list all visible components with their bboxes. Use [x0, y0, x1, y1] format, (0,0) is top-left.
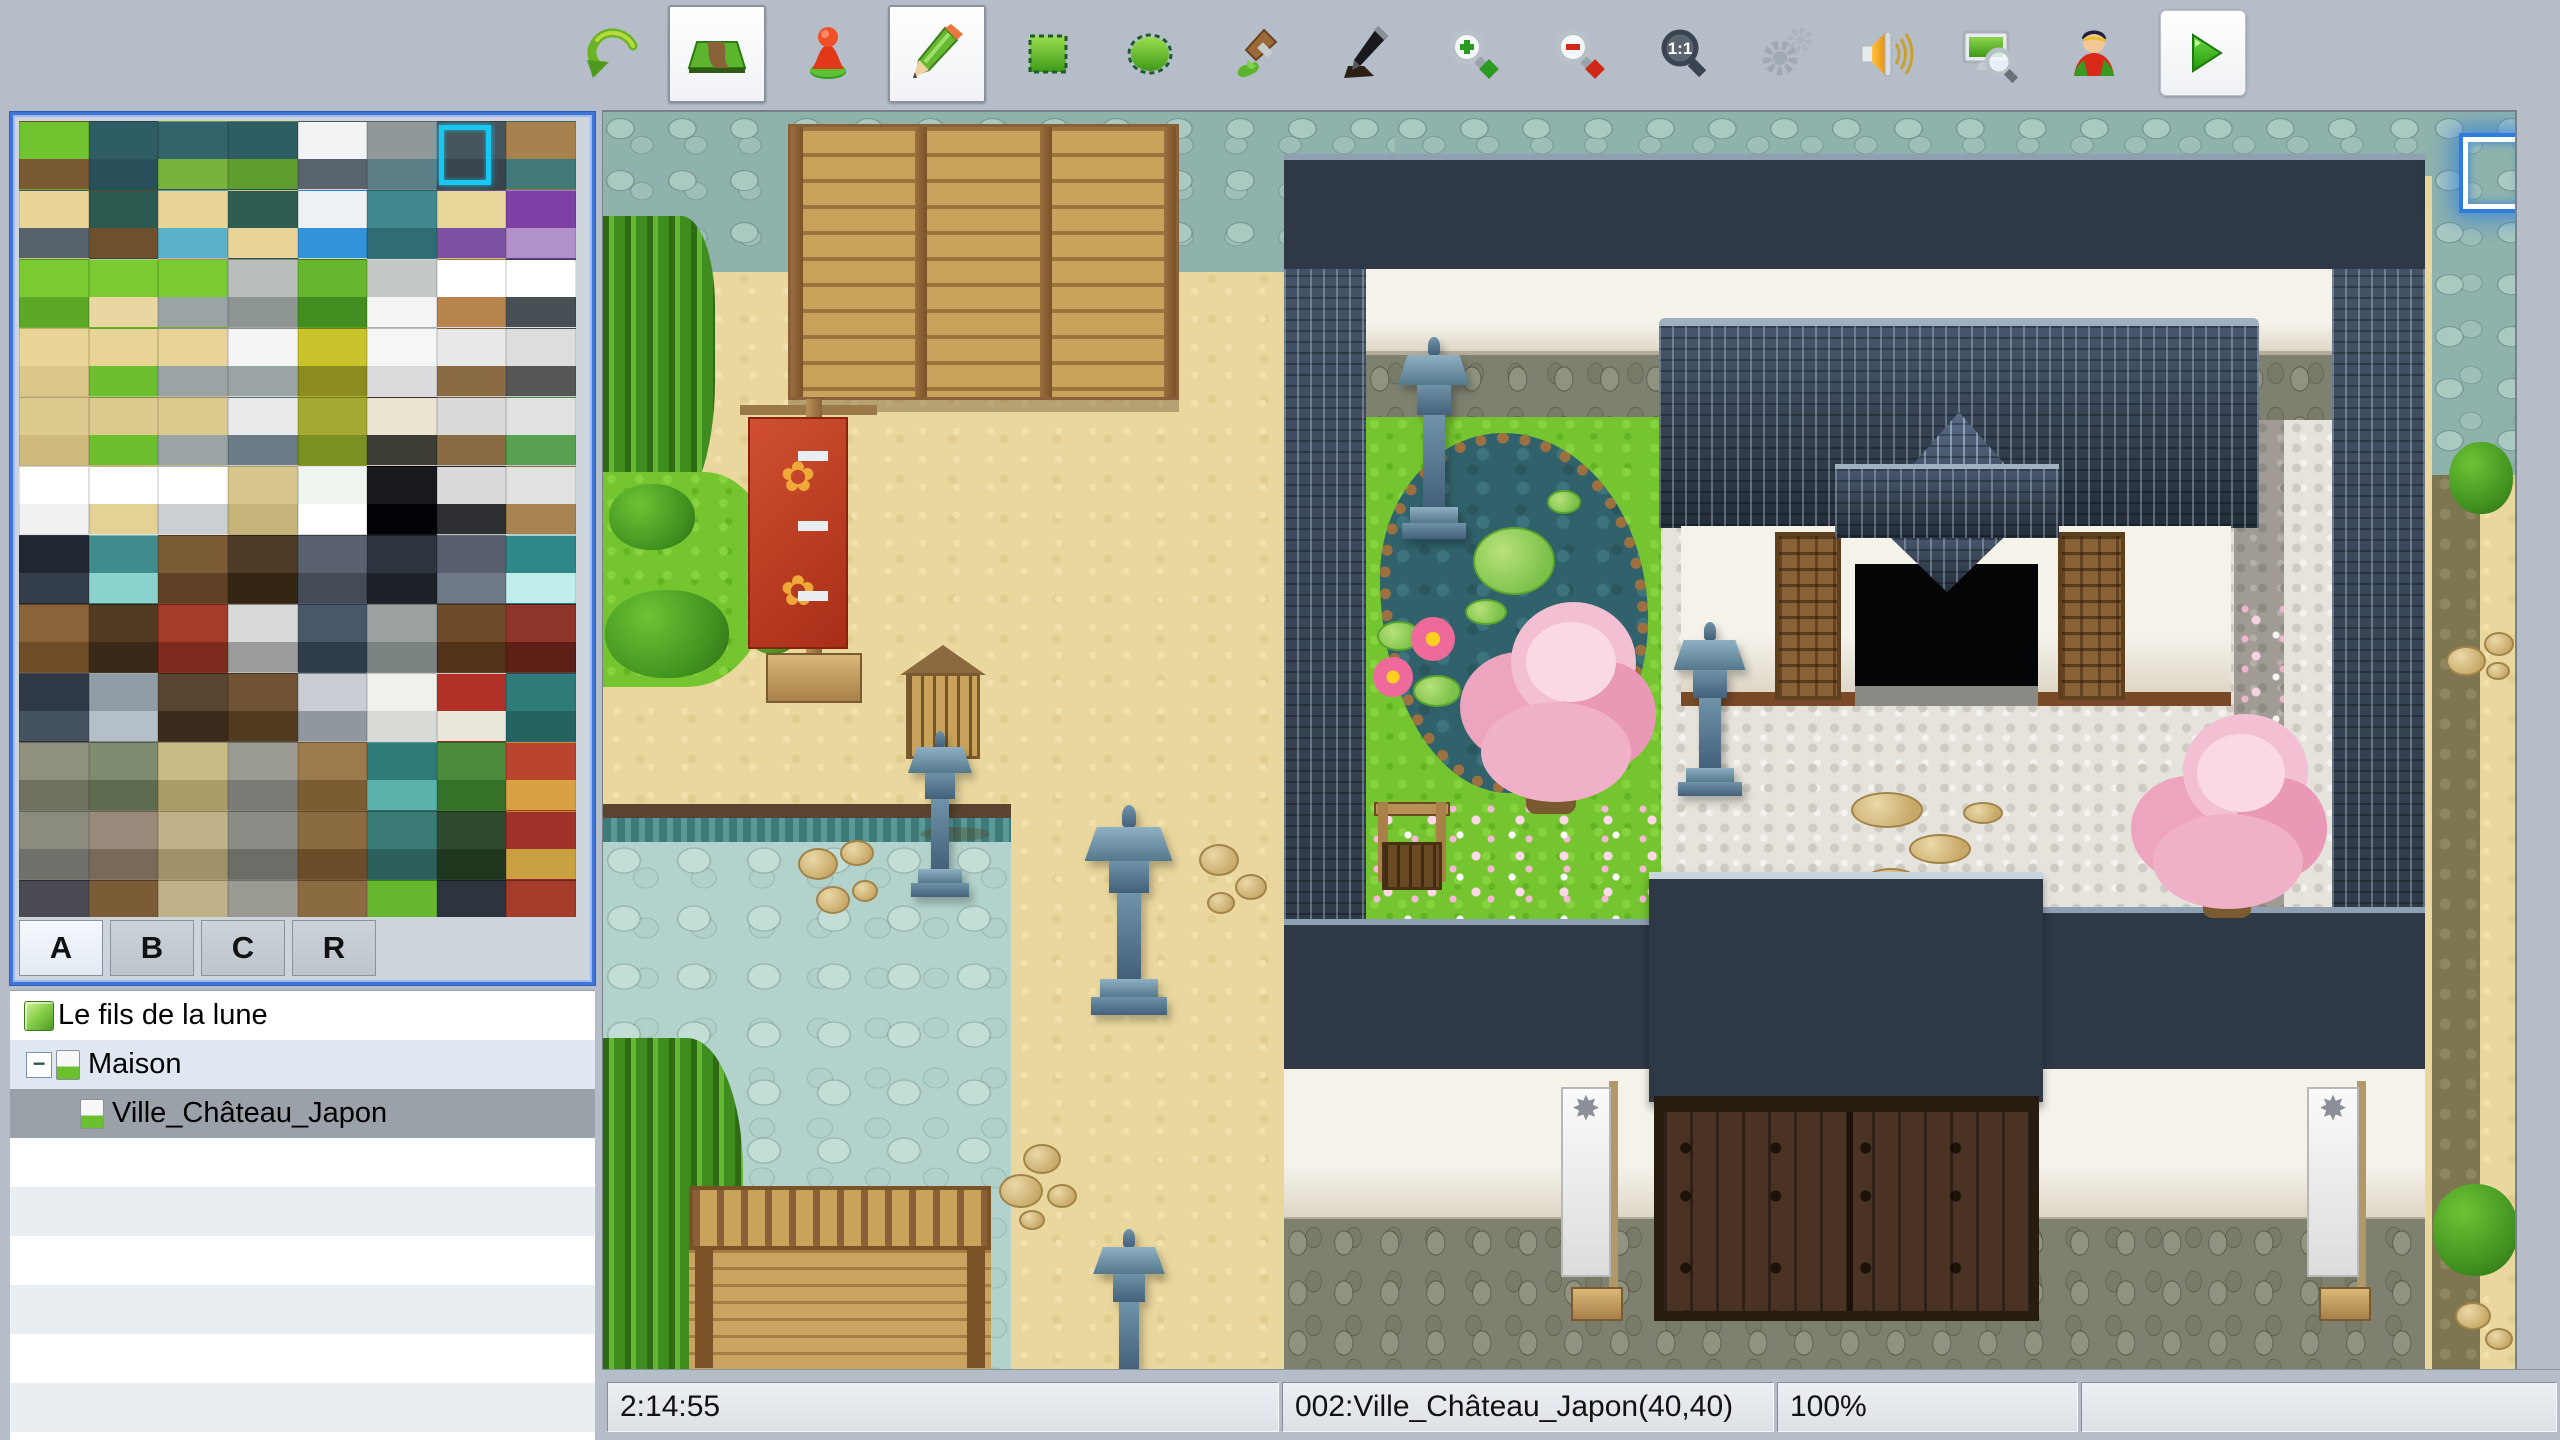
palette-tile-r6c1[interactable] — [89, 535, 159, 604]
zoom-out-icon[interactable] — [1540, 16, 1616, 92]
stone-lantern — [1395, 337, 1472, 575]
palette-tile-r11c1[interactable] — [89, 880, 159, 917]
palette-tile-r6c7[interactable] — [506, 535, 576, 604]
lily-pad — [1473, 527, 1555, 595]
white-banner: ✸ — [1561, 1081, 1627, 1325]
palette-tile-r6c6[interactable] — [437, 535, 507, 604]
tab-c-label: C — [232, 930, 254, 966]
playtest-icon[interactable] — [2160, 10, 2246, 96]
palette-tile-r7c0[interactable] — [19, 604, 89, 673]
palette-tile-r2c0[interactable] — [19, 259, 89, 328]
palette-tile-r4c4[interactable] — [298, 397, 368, 466]
palette-tile-r11c2[interactable] — [158, 880, 228, 917]
palette-tile-r11c3[interactable] — [228, 880, 298, 917]
bush — [2449, 442, 2513, 514]
palette-tile-r6c2[interactable] — [158, 535, 228, 604]
palette-tile-r10c0[interactable] — [19, 811, 89, 880]
map-canvas[interactable]: ✿✿ ✿✿ — [602, 110, 2517, 1369]
gate-roof — [1649, 872, 2043, 1102]
speaker-icon[interactable] — [1848, 16, 1924, 92]
palette-tile-r10c6[interactable] — [437, 811, 507, 880]
tree-row-empty — [10, 1285, 595, 1334]
tab-b-label: B — [141, 930, 163, 966]
castle-wall-roof-bottom-right — [2039, 907, 2425, 1069]
wooden-fence — [788, 124, 1179, 400]
palette-tile-r9c2[interactable] — [158, 742, 228, 811]
rock-cluster — [2455, 1292, 2517, 1362]
palette-tile-r8c5[interactable] — [367, 673, 437, 742]
palette-tile-r7c6[interactable] — [437, 604, 507, 673]
entrance-awning — [1835, 464, 2059, 538]
tree-row-empty — [10, 1236, 595, 1285]
palette-tile-r0c6[interactable] — [437, 121, 507, 190]
palette-tile-r6c5[interactable] — [367, 535, 437, 604]
palette-tile-r5c1[interactable] — [89, 466, 159, 535]
tree-item-project[interactable]: Le fils de la lune — [10, 991, 595, 1040]
palette-tile-r1c5[interactable] — [367, 190, 437, 259]
palette-tile-r11c5[interactable] — [367, 880, 437, 917]
palette-tile-r8c0[interactable] — [19, 673, 89, 742]
palette-tile-r9c0[interactable] — [19, 742, 89, 811]
castle-wall-roof-bottom-left — [1284, 919, 1664, 1071]
tab-r-label: R — [323, 930, 345, 966]
palette-tile-r0c5[interactable] — [367, 121, 437, 190]
shadow-pen-tool-icon[interactable] — [1328, 16, 1404, 92]
palette-tile-r2c7[interactable] — [506, 259, 576, 328]
ellipse-tool-icon[interactable] — [1112, 16, 1188, 92]
palette-tile-r10c4[interactable] — [298, 811, 368, 880]
collapse-expander-icon[interactable]: − — [26, 1052, 52, 1078]
pencil-tool-icon[interactable] — [888, 5, 986, 103]
palette-tile-r5c6[interactable] — [437, 466, 507, 535]
tab-a-label: A — [50, 930, 72, 966]
palette-tile-r3c2[interactable] — [158, 328, 228, 397]
rock-cluster — [999, 1144, 1093, 1239]
tab-b[interactable]: B — [110, 920, 194, 976]
palette-tile-r5c0[interactable] — [19, 466, 89, 535]
actual-size-icon[interactable]: 1:1 — [1646, 16, 1722, 92]
palette-tile-r7c4[interactable] — [298, 604, 368, 673]
palette-tile-r5c2[interactable] — [158, 466, 228, 535]
palette-tile-r2c5[interactable] — [367, 259, 437, 328]
map-edit-mode-icon[interactable] — [668, 5, 766, 103]
palette-tile-r4c5[interactable] — [367, 397, 437, 466]
tree-row-empty — [10, 1334, 595, 1383]
stone-lantern — [1081, 805, 1176, 1033]
rectangle-tool-icon[interactable] — [1010, 16, 1086, 92]
bush — [2433, 1184, 2517, 1276]
stone-lantern — [905, 731, 975, 911]
flood-fill-tool-icon[interactable] — [1222, 16, 1298, 92]
palette-tile-r1c2[interactable] — [158, 190, 228, 259]
palette-tile-r3c3[interactable] — [228, 328, 298, 397]
map-cursor[interactable] — [2463, 137, 2517, 209]
rock-cluster — [1199, 840, 1274, 930]
palette-tile-r5c3[interactable] — [228, 466, 298, 535]
palette-tabs: A B C R — [19, 920, 376, 976]
palette-tile-r3c5[interactable] — [367, 328, 437, 397]
palette-tile-r6c0[interactable] — [19, 535, 89, 604]
palette-tile-r2c2[interactable] — [158, 259, 228, 328]
palette-tile-r10c3[interactable] — [228, 811, 298, 880]
rock-cluster — [796, 840, 888, 932]
palette-tile-r3c1[interactable] — [89, 328, 159, 397]
palette-tile-r3c4[interactable] — [298, 328, 368, 397]
palette-tile-r8c6[interactable] — [437, 673, 507, 742]
tileset-grid[interactable] — [19, 121, 576, 917]
palette-tile-r9c1[interactable] — [89, 742, 159, 811]
tree-row-empty — [10, 1187, 595, 1236]
status-zoom-level: 100% — [1777, 1382, 2078, 1432]
red-banner: ✿✿ — [740, 391, 877, 703]
palette-tile-r5c5[interactable] — [367, 466, 437, 535]
map-file-icon — [56, 1050, 80, 1080]
palette-tile-r8c2[interactable] — [158, 673, 228, 742]
white-banner: ✸ — [2307, 1081, 2375, 1325]
palette-tile-r0c3[interactable] — [228, 121, 298, 190]
project-label: Le fils de la lune — [58, 999, 268, 1032]
tree-item-label: Maison — [88, 1048, 182, 1081]
tileset-palette: A B C R — [10, 112, 595, 985]
tab-c[interactable]: C — [201, 920, 285, 976]
tree-row-empty — [10, 1432, 595, 1440]
palette-tile-r5c7[interactable] — [506, 466, 576, 535]
palette-tile-r7c2[interactable] — [158, 604, 228, 673]
tree-item-maison[interactable]: − Maison — [10, 1040, 595, 1089]
palette-tile-r10c5[interactable] — [367, 811, 437, 880]
palette-tile-r0c0[interactable] — [19, 121, 89, 190]
bush — [609, 484, 695, 550]
status-time: 2:14:55 — [607, 1382, 1279, 1432]
palette-tile-r11c4[interactable] — [298, 880, 368, 917]
palette-tile-r8c3[interactable] — [228, 673, 298, 742]
bush — [605, 590, 729, 678]
palette-tile-r9c7[interactable] — [506, 742, 576, 811]
tree-item-label: Ville_Château_Japon — [112, 1097, 387, 1130]
palette-tile-r1c4[interactable] — [298, 190, 368, 259]
palette-tile-r8c7[interactable] — [506, 673, 576, 742]
palette-tile-r2c1[interactable] — [89, 259, 159, 328]
palette-tile-r3c7[interactable] — [506, 328, 576, 397]
map-tree: Le fils de la lune − Maison Ville_Châtea… — [10, 990, 595, 1440]
tree-empty-rows — [10, 1138, 595, 1440]
palette-tile-r1c7[interactable] — [506, 190, 576, 259]
wooden-bridge — [689, 1186, 991, 1369]
palette-tile-r4c3[interactable] — [228, 397, 298, 466]
palette-tile-r5c4[interactable] — [298, 466, 368, 535]
palette-tile-r7c7[interactable] — [506, 604, 576, 673]
cherry-tree — [1456, 592, 1661, 832]
lily-pad — [1547, 490, 1581, 514]
castle-wall-roof-top — [1284, 154, 2425, 269]
tree-row-empty — [10, 1383, 595, 1432]
well — [1374, 802, 1450, 894]
palette-tile-r1c3[interactable] — [228, 190, 298, 259]
tree-row-empty — [10, 1138, 595, 1187]
project-cube-icon — [24, 1001, 54, 1031]
palette-tile-r1c6[interactable] — [437, 190, 507, 259]
stone-lantern — [1090, 1229, 1168, 1369]
palette-tile-r8c4[interactable] — [298, 673, 368, 742]
palette-tile-r9c4[interactable] — [298, 742, 368, 811]
palette-tile-r9c3[interactable] — [228, 742, 298, 811]
palette-tile-r6c3[interactable] — [228, 535, 298, 604]
palette-tile-r4c7[interactable] — [506, 397, 576, 466]
rock-cluster — [2446, 632, 2517, 692]
status-extra — [2081, 1382, 2557, 1432]
palette-tile-r11c7[interactable] — [506, 880, 576, 917]
tab-a[interactable]: A — [19, 920, 103, 976]
tree-item-ville-chateau-japon[interactable]: Ville_Château_Japon — [10, 1089, 595, 1138]
palette-tile-r1c1[interactable] — [89, 190, 159, 259]
tab-r[interactable]: R — [292, 920, 376, 976]
palette-tile-r7c5[interactable] — [367, 604, 437, 673]
sliding-door — [2058, 532, 2125, 700]
palette-tile-r9c6[interactable] — [437, 742, 507, 811]
palette-tile-r4c0[interactable] — [19, 397, 89, 466]
gate-doors — [1654, 1096, 2039, 1321]
character-icon[interactable] — [2056, 16, 2132, 92]
palette-tile-r3c0[interactable] — [19, 328, 89, 397]
palette-tile-r2c6[interactable] — [437, 259, 507, 328]
bamboo-grove — [603, 216, 715, 516]
palette-tile-r0c2[interactable] — [158, 121, 228, 190]
sliding-door — [1775, 532, 1841, 700]
palette-tile-r4c6[interactable] — [437, 397, 507, 466]
zoom-in-icon[interactable] — [1434, 16, 1510, 92]
toolbar: 1:1 — [0, 0, 2560, 110]
palette-tile-r1c0[interactable] — [19, 190, 89, 259]
map-file-icon — [80, 1099, 104, 1129]
palette-tile-r6c4[interactable] — [298, 535, 368, 604]
palette-tile-r8c1[interactable] — [89, 673, 159, 742]
palette-tile-r0c7[interactable] — [506, 121, 576, 190]
status-bar: 2:14:55 002:Ville_Château_Japon(40,40) 1… — [602, 1369, 2560, 1440]
gears-icon[interactable] — [1748, 16, 1824, 92]
svg-text:1:1: 1:1 — [1668, 39, 1693, 58]
stone-lantern — [1671, 622, 1748, 822]
palette-tile-r11c6[interactable] — [437, 880, 507, 917]
palette-tile-r7c1[interactable] — [89, 604, 159, 673]
palette-tile-r3c6[interactable] — [437, 328, 507, 397]
palette-tile-r2c3[interactable] — [228, 259, 298, 328]
status-map-info: 002:Ville_Château_Japon(40,40) — [1282, 1382, 1774, 1432]
screen-search-icon[interactable] — [1952, 16, 2028, 92]
palette-tile-r9c5[interactable] — [367, 742, 437, 811]
palette-tile-r7c3[interactable] — [228, 604, 298, 673]
palette-tile-r2c4[interactable] — [298, 259, 368, 328]
palette-tile-r0c1[interactable] — [89, 121, 159, 190]
undo-icon[interactable] — [575, 16, 651, 92]
palette-tile-r10c7[interactable] — [506, 811, 576, 880]
event-edit-mode-icon[interactable] — [790, 16, 866, 92]
palette-tile-r11c0[interactable] — [19, 880, 89, 917]
palette-tile-r0c4[interactable] — [298, 121, 368, 190]
palette-tile-r4c1[interactable] — [89, 397, 159, 466]
palette-tile-r4c2[interactable] — [158, 397, 228, 466]
palette-tile-r10c1[interactable] — [89, 811, 159, 880]
palette-tile-r10c2[interactable] — [158, 811, 228, 880]
cherry-tree — [2125, 706, 2335, 921]
